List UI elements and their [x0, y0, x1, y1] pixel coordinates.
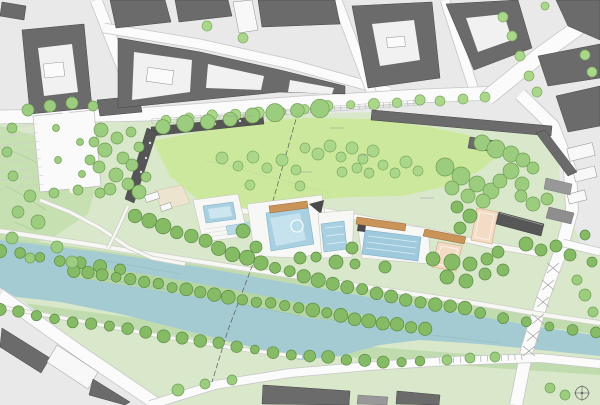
trees-west-grove-0 — [94, 123, 108, 137]
tree-row-pool-slope-14 — [326, 277, 339, 290]
tree-row-island-7 — [167, 283, 177, 293]
trees-west-grove-9 — [132, 185, 146, 199]
trees-lawn-14 — [337, 167, 347, 177]
tree-row-northeast-bank-4 — [567, 324, 578, 335]
tree-row-pool-slope-18 — [385, 290, 398, 303]
north-symbol-dot — [581, 392, 584, 395]
tree-row-south-bank-6 — [104, 321, 114, 331]
trees-misc-7 — [200, 379, 210, 389]
tree-row-south-bank-16 — [286, 350, 296, 360]
tree-row-pergola-6 — [291, 104, 305, 118]
tree-row-island-8 — [180, 283, 193, 296]
trees-pool-area-7 — [379, 261, 391, 273]
trees-misc-16 — [560, 390, 570, 400]
tree-row-pool-slope-17 — [370, 287, 383, 300]
trees-lawn-21 — [295, 181, 305, 191]
tree-row-upper-north-bank-2 — [35, 252, 45, 262]
trees-lawn-8 — [324, 140, 336, 152]
trees-pool-area-19 — [497, 264, 509, 276]
site-plan-svg — [0, 0, 600, 405]
tree-row-pool-slope-8 — [240, 250, 255, 265]
tree-row-pergola-0 — [156, 120, 170, 134]
tree-row-boulevard-median-10 — [392, 98, 402, 108]
trees-pool-area-25 — [587, 257, 597, 267]
infill-c — [387, 36, 406, 47]
pergola-columns-4 — [149, 142, 151, 144]
tree-row-northeast-bank-3 — [545, 322, 554, 331]
tree-row-island-24 — [405, 322, 416, 333]
tree-row-island-12 — [237, 295, 248, 306]
trees-lawn-6 — [300, 143, 310, 153]
tree-row-island-23 — [390, 317, 403, 330]
tree-row-island-20 — [348, 313, 361, 326]
tree-row-pergola-4 — [245, 108, 260, 123]
trees-pool-area-5 — [346, 242, 358, 254]
trees-lawn-13 — [352, 163, 362, 173]
tree-row-south-bank-19 — [341, 355, 351, 365]
trees-avenue-9 — [238, 33, 248, 43]
trees-pool-area-18 — [479, 268, 491, 280]
trees-lawn-east-cluster-15 — [515, 190, 527, 202]
trees-parking-ring-12 — [77, 139, 84, 146]
tree-row-pergola-5 — [266, 104, 284, 122]
trees-lawn-1 — [233, 161, 243, 171]
trees-west-grove-8 — [104, 183, 116, 195]
trees-west-grove-6 — [126, 159, 138, 171]
trees-pool-area-22 — [550, 240, 562, 252]
tree-row-south-bank-2 — [31, 310, 41, 320]
tree-row-island-16 — [294, 303, 304, 313]
trees-pool-area-12 — [492, 246, 504, 258]
trees-pool-area-13 — [454, 222, 466, 234]
trees-lawn-4 — [276, 154, 288, 166]
trees-lawn-19 — [413, 166, 423, 176]
trees-west-grove-2 — [98, 143, 112, 157]
tree-row-boulevard-median-11 — [415, 95, 425, 105]
tree-row-island-9 — [194, 286, 206, 298]
trees-avenue-5 — [541, 2, 549, 10]
tree-row-south-bank-5 — [85, 318, 97, 330]
trees-avenue-8 — [202, 21, 212, 31]
trees-pool-area-24 — [580, 230, 590, 240]
trees-lawn-east-cluster-5 — [461, 189, 475, 203]
trees-misc-4 — [25, 253, 35, 263]
trees-parking-ring-2 — [66, 97, 78, 109]
tree-row-northeast-bank-2 — [521, 317, 531, 327]
trees-west-grove-12 — [126, 127, 136, 137]
tree-row-pool-slope-7 — [225, 247, 240, 262]
building-upper-row-3 — [258, 0, 340, 27]
tree-row-south-bank-7 — [122, 323, 134, 335]
tree-row-south-bank-4 — [67, 317, 78, 328]
trees-lawn-east-cluster-17 — [541, 193, 553, 205]
trees-pool-area-15 — [451, 201, 463, 213]
trees-parking-ring-3 — [88, 101, 98, 111]
tree-row-south-bank-11 — [194, 335, 207, 348]
tree-row-south-bank-8 — [140, 326, 152, 338]
tree-row-island-21 — [362, 314, 376, 328]
trees-parking-ring-14 — [79, 171, 86, 178]
trees-lawn-east-cluster-4 — [445, 181, 459, 195]
tree-row-pergola-3 — [223, 112, 237, 126]
trees-west-grove-10 — [141, 172, 151, 182]
tree-row-pool-slope-4 — [185, 229, 199, 243]
trees-avenue-7 — [587, 67, 597, 77]
tree-row-south-bank-23 — [415, 356, 425, 366]
tree-row-island-13 — [251, 297, 261, 307]
trees-misc-14 — [572, 275, 582, 285]
trees-misc-8 — [227, 375, 237, 385]
trees-misc-3 — [51, 241, 63, 253]
tree-row-south-bank-15 — [267, 347, 279, 359]
tree-row-island-5 — [139, 276, 150, 287]
trees-lawn-16 — [378, 160, 388, 170]
tree-row-south-bank-10 — [176, 332, 188, 344]
tree-row-pool-slope-9 — [254, 256, 268, 270]
trees-misc-1 — [31, 215, 45, 229]
trees-pool-area-6 — [350, 259, 360, 269]
trees-lawn-east-cluster-9 — [515, 177, 529, 191]
trees-misc-6 — [172, 384, 184, 396]
tree-row-south-bank-1 — [13, 306, 25, 318]
trees-misc-11 — [490, 352, 500, 362]
trees-lawn-5 — [291, 165, 301, 175]
tree-row-northeast-bank-0 — [475, 307, 486, 318]
tree-row-boulevard-median-8 — [347, 101, 355, 109]
tree-row-south-bank-22 — [397, 358, 406, 367]
tree-row-south-bank-14 — [250, 345, 259, 354]
trees-avenue-1 — [507, 31, 517, 41]
trees-lawn-east-cluster-11 — [487, 140, 505, 158]
tree-row-pool-slope-16 — [357, 284, 368, 295]
tree-row-northeast-bank-1 — [498, 313, 509, 324]
tree-row-island-18 — [322, 308, 332, 318]
tree-row-pool-slope-11 — [284, 266, 295, 277]
tree-row-pool-slope-12 — [297, 270, 310, 283]
trees-pool-area-17 — [459, 274, 473, 288]
trees-lawn-east-cluster-16 — [526, 197, 540, 211]
trees-misc-2 — [6, 232, 18, 244]
trees-lawn-east-cluster-8 — [503, 163, 519, 179]
tree-row-south-bank-12 — [213, 337, 224, 348]
trees-pool-area-3 — [311, 252, 321, 262]
tree-row-pool-slope-1 — [142, 213, 157, 228]
tree-row-pool-slope-20 — [415, 297, 426, 308]
trees-west-grove-7 — [122, 178, 134, 190]
trees-avenue-12 — [480, 92, 490, 102]
tree-row-south-bank-13 — [231, 341, 243, 353]
trees-parking-ring-8 — [49, 188, 59, 198]
trees-lawn-15 — [364, 168, 374, 178]
trees-west-grove-11 — [134, 142, 144, 152]
trees-pool-area-4 — [329, 255, 343, 269]
trees-pool-area-2 — [294, 252, 306, 264]
tree-row-island-6 — [153, 278, 163, 288]
trees-pool-area-11 — [481, 253, 493, 265]
tree-row-upper-north-bank-1 — [15, 248, 26, 259]
trees-avenue-6 — [580, 50, 590, 60]
trees-misc-12 — [579, 289, 591, 301]
tree-row-island-19 — [334, 308, 348, 322]
whirlpool-feature — [291, 220, 303, 232]
trees-avenue-4 — [532, 87, 542, 97]
building-south-gray — [357, 395, 388, 405]
trees-lawn-0 — [216, 152, 228, 164]
trees-pool-area-0 — [236, 224, 250, 238]
tree-row-upper-north-bank-3 — [54, 256, 65, 267]
trees-avenue-11 — [458, 94, 468, 104]
trees-west-grove-4 — [93, 161, 105, 173]
tree-row-island-11 — [221, 290, 235, 304]
trees-lawn-9 — [336, 152, 346, 162]
tree-row-pool-slope-5 — [199, 234, 212, 247]
tree-row-boulevard-median-9 — [368, 98, 379, 109]
tree-row-pool-slope-2 — [155, 218, 170, 233]
tree-row-south-bank-9 — [157, 330, 170, 343]
tree-row-pool-slope-21 — [429, 298, 443, 312]
trees-pool-area-8 — [426, 252, 440, 266]
trees-pool-area-9 — [444, 254, 460, 270]
tree-row-pergola-1 — [177, 115, 194, 132]
tree-row-south-bank-18 — [322, 350, 335, 363]
trees-lawn-east-cluster-14 — [527, 162, 539, 174]
trees-lawn-east-cluster-6 — [476, 194, 490, 208]
trees-parking-ring-5 — [2, 147, 12, 157]
trees-lawn-2 — [247, 151, 259, 163]
trees-parking-ring-1 — [44, 100, 56, 112]
trees-west-grove-1 — [111, 132, 123, 144]
tree-row-pool-slope-0 — [128, 209, 142, 223]
tree-row-pool-slope-15 — [341, 281, 354, 294]
trees-pool-area-1 — [250, 241, 262, 253]
tree-row-island-15 — [280, 300, 290, 310]
trees-parking-ring-6 — [8, 171, 18, 181]
trees-lawn-11 — [358, 154, 368, 164]
trees-lawn-east-cluster-0 — [436, 158, 454, 176]
trees-lawn-7 — [312, 148, 324, 160]
trees-avenue-0 — [498, 12, 508, 22]
trees-misc-9 — [442, 355, 452, 365]
trees-lawn-20 — [245, 180, 255, 190]
trees-lawn-3 — [262, 163, 272, 173]
tree-row-pool-slope-23 — [458, 301, 472, 315]
trees-west-grove-14 — [85, 155, 95, 165]
trees-pool-area-23 — [564, 249, 576, 261]
tree-row-pool-slope-13 — [311, 273, 325, 287]
trees-lawn-18 — [400, 156, 412, 168]
trees-pool-area-21 — [535, 244, 547, 256]
tree-row-island-3 — [111, 272, 121, 282]
trees-pool-area-20 — [519, 237, 533, 251]
trees-west-grove-13 — [89, 137, 99, 147]
trees-parking-ring-10 — [95, 188, 105, 198]
trees-misc-10 — [465, 353, 475, 363]
trees-pool-area-16 — [440, 270, 454, 284]
trees-parking-ring-13 — [55, 157, 62, 164]
tree-row-pool-slope-22 — [444, 300, 457, 313]
trees-west-grove-5 — [109, 168, 123, 182]
trees-lawn-10 — [346, 142, 358, 154]
trees-lawn-17 — [390, 168, 400, 178]
infill-block-a — [43, 62, 64, 78]
trees-parking-ring-9 — [73, 185, 83, 195]
trees-parking-ring-11 — [53, 125, 60, 132]
trees-parking-ring-7 — [24, 190, 36, 202]
trees-avenue-3 — [524, 71, 534, 81]
tree-row-island-25 — [419, 322, 432, 335]
tree-row-northeast-bank-5 — [591, 327, 600, 338]
tree-row-south-bank-21 — [377, 356, 389, 368]
tree-row-island-1 — [82, 266, 94, 278]
trees-avenue-2 — [515, 51, 525, 61]
tree-row-island-17 — [306, 303, 320, 317]
trees-pool-area-10 — [463, 257, 477, 271]
trees-misc-0 — [12, 206, 24, 218]
tree-row-south-bank-3 — [50, 314, 60, 324]
trees-misc-15 — [545, 383, 555, 393]
trees-avenue-10 — [435, 96, 445, 106]
tree-row-island-10 — [208, 288, 221, 301]
tree-row-island-2 — [96, 269, 108, 281]
tree-row-south-bank-20 — [359, 354, 371, 366]
tree-row-south-bank-17 — [304, 350, 316, 362]
tree-row-island-4 — [125, 273, 136, 284]
tree-row-pool-slope-19 — [399, 294, 412, 307]
pergola-columns-5 — [145, 157, 147, 159]
tree-row-pergola-7 — [311, 99, 330, 118]
tree-row-pool-slope-3 — [170, 226, 183, 239]
pool-middle — [321, 221, 347, 252]
tree-row-island-14 — [265, 298, 276, 309]
trees-misc-5 — [66, 256, 78, 268]
trees-parking-ring-4 — [7, 123, 17, 133]
trees-pool-area-14 — [463, 209, 477, 223]
pergola-columns-3 — [239, 120, 241, 122]
tree-row-pool-slope-10 — [270, 262, 281, 273]
site-plan — [0, 0, 600, 405]
trees-misc-13 — [588, 307, 598, 317]
tree-row-island-22 — [376, 317, 389, 330]
tree-row-pergola-2 — [201, 115, 216, 130]
tree-row-pool-slope-6 — [211, 241, 225, 255]
trees-parking-ring-0 — [22, 104, 34, 116]
pergola-columns-6 — [140, 171, 142, 173]
